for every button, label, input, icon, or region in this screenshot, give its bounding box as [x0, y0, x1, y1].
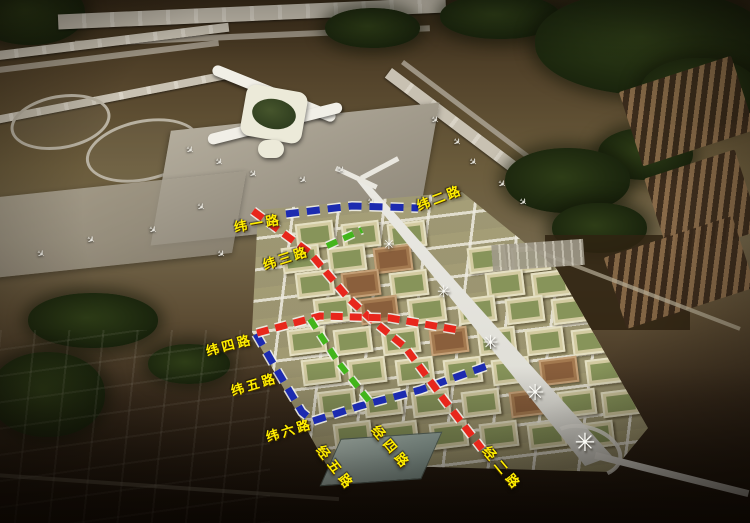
- white-3d-glyph: ✳: [575, 428, 596, 457]
- white-3d-glyph: ✳: [483, 332, 499, 354]
- green-route-north: [327, 230, 362, 246]
- white-3d-glyph: ✳: [526, 381, 544, 406]
- blue-route-southwest-outline: [256, 334, 487, 421]
- red-route-wei4: [257, 316, 458, 333]
- annotation-overlay: [0, 0, 750, 523]
- white-3d-glyph: ✳: [383, 237, 395, 253]
- white-3d-glyph: ✳: [437, 282, 450, 301]
- aerial-planning-rendering: ✈✈✈✈✈✈✈✈✈✈✈✈✈✈✈✈✈✈✳✳✳✳✳纬一路纬二路纬三路纬四路纬五路纬六…: [0, 0, 750, 523]
- blue-route-southwest: [256, 334, 487, 421]
- green-route-south-outline: [310, 319, 370, 402]
- green-route-south: [310, 319, 370, 402]
